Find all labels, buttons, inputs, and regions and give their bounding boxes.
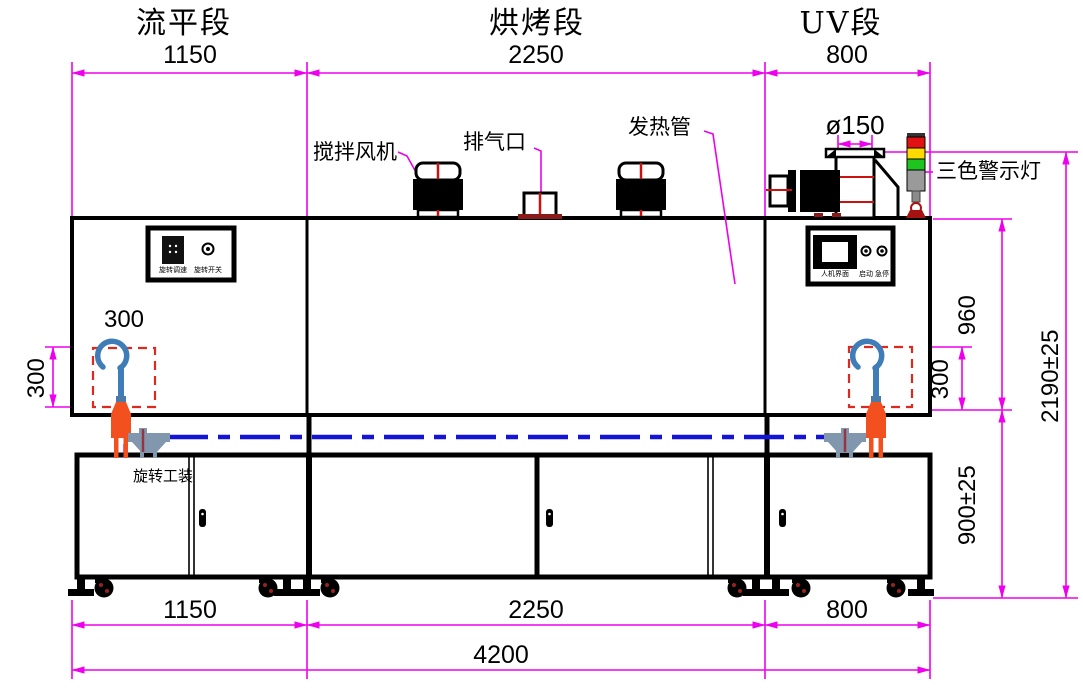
label-heating-tube: 发热管 — [628, 116, 691, 139]
light-yellow — [907, 148, 925, 159]
stir-fan-motor-2 — [615, 163, 667, 218]
dim-top-leveling: 1150 — [120, 42, 260, 70]
blower-motor — [788, 170, 840, 212]
label-rotary-fixture: 旋转工装 — [133, 468, 193, 485]
dim-bottom-leveling: 1150 — [120, 597, 260, 625]
spindle-left — [111, 402, 131, 458]
dim-fixture-height-right: 300 — [928, 348, 954, 410]
light-green — [907, 159, 925, 170]
dim-bottom-baking: 2250 — [466, 597, 606, 625]
dim-fixture-width: 300 — [93, 307, 155, 333]
dim-upper-height: 960 — [955, 265, 981, 365]
dim-top-uv: 800 — [777, 42, 917, 70]
section-title-uv: UV段 — [776, 7, 906, 40]
drawing-canvas — [0, 0, 1083, 690]
lower-cabinet — [77, 455, 930, 577]
label-duct-diameter: ø150 — [815, 111, 895, 140]
uv-blower — [766, 149, 898, 218]
dim-total-length: 4200 — [431, 642, 571, 670]
light-red — [907, 137, 925, 148]
exhaust-port — [518, 193, 562, 217]
engineering-drawing-oven-line: 流平段 烘烤段 UV段 1150 2250 800 搅拌风机 排气口 发热管 ø… — [0, 0, 1083, 690]
dim-top-baking: 2250 — [466, 42, 606, 70]
dim-bottom-uv: 800 — [777, 597, 917, 625]
dim-fixture-height-left: 300 — [24, 347, 50, 409]
section-title-leveling: 流平段 — [104, 7, 264, 40]
section-title-baking: 烘烤段 — [457, 7, 617, 40]
tricolor-warning-light — [906, 133, 926, 218]
label-exhaust-port: 排气口 — [463, 131, 526, 154]
panel-label-switch: 旋转开关 — [186, 267, 230, 275]
blower-bracket — [875, 160, 898, 218]
blower-duct — [836, 152, 874, 218]
panel-label-hmi: 人机界面 — [813, 271, 857, 279]
dim-lower-height: 900±25 — [955, 455, 981, 555]
stir-fan-motor-1 — [412, 163, 464, 218]
panel-label-estop: 急停 — [872, 271, 892, 279]
speed-display — [162, 236, 184, 264]
conveyor-band — [168, 415, 824, 457]
dim-total-height: 2190±25 — [1038, 316, 1064, 436]
spindle-right — [866, 402, 886, 458]
label-stir-fan: 搅拌风机 — [307, 141, 397, 164]
label-tricolor-light: 三色警示灯 — [936, 160, 1041, 183]
